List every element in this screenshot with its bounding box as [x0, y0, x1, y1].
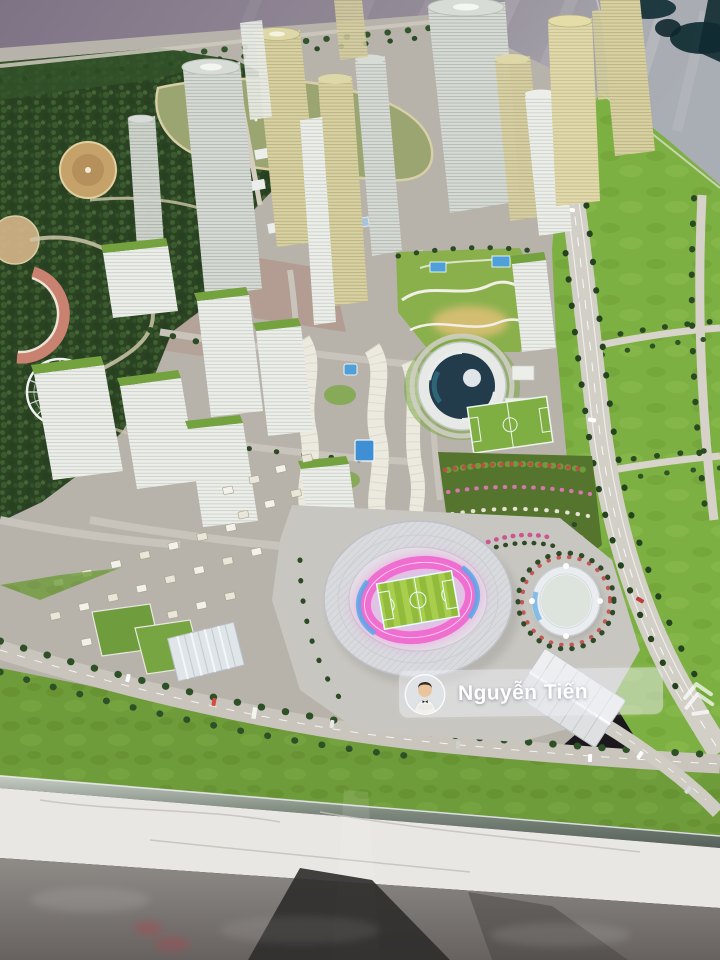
scale-model-scene [0, 0, 720, 960]
helipad [453, 4, 479, 11]
small-pool [344, 364, 357, 375]
photo-of-scale-model: Nguyễn Tiến [0, 0, 720, 960]
layered-chevron-house-icon [678, 674, 717, 718]
tower [334, 0, 368, 60]
watermark-name: Nguyễn Tiến [458, 680, 588, 706]
helipad [200, 64, 222, 71]
swimming-pool [355, 440, 374, 461]
watermark-strip: Nguyễn Tiến [399, 667, 664, 718]
roof-pool [430, 262, 446, 272]
lit-atrium-glow [432, 306, 508, 338]
avatar-portrait [406, 675, 445, 714]
avatar [406, 675, 445, 714]
red-reflection [134, 921, 162, 935]
watermark-house-logo [678, 674, 717, 718]
